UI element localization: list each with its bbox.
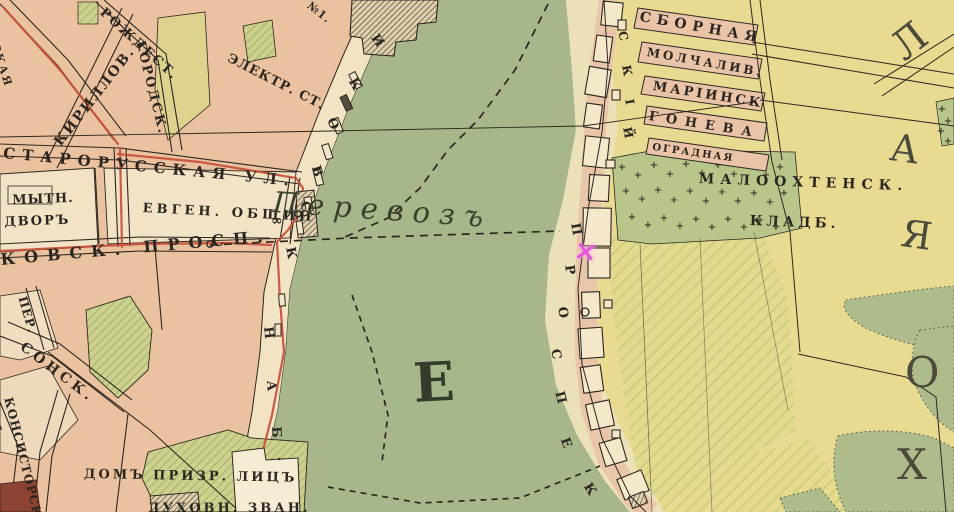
dom-prizreniya: ДОМЪ ПРИЗР. ЛИЦЪ (84, 468, 298, 485)
mytny-dvor-line1: МЫТН. (12, 192, 74, 207)
river-letter-e: Е (412, 354, 456, 410)
cemetery-name-line2: КЛАДБ. (750, 214, 840, 231)
map-labels: СТАРОРУССКАЯ УЛ.КИРИЛЛОВ.РОЖДЕСТ.ГОРОДСК… (0, 0, 954, 512)
district-letter-kh: Х (897, 444, 927, 486)
embankment-letter-v: В (309, 164, 325, 178)
prospekt-letter-e: Е (558, 436, 574, 450)
malookhtensky-letter-i: І (623, 98, 636, 106)
embankment-letter-i: И (368, 32, 386, 50)
cemetery-name-line1: МАЛООХТЕНСК. (699, 172, 909, 193)
prospekt-letter-p2: П (552, 390, 568, 405)
building-no1: №1. (305, 0, 333, 25)
district-letter-l: Л (884, 15, 935, 67)
street-sbornaya: СБОРНАЯ (639, 10, 764, 45)
street-starorusskaya: СТАРОРУССКАЯ УЛ. (3, 146, 297, 189)
street-per: ПЕР. (16, 295, 38, 335)
street-kirillovskaya: КИРИЛЛОВ. (52, 44, 138, 148)
street-konsistorsk: КОНСИСТОРСК. (2, 396, 45, 512)
malookhtensky-letter-k: К (620, 64, 634, 77)
malookhtensky-letter-s: С (616, 30, 630, 42)
prospekt-letter-s: С (548, 348, 563, 360)
embankment-letter-a: А (264, 380, 278, 391)
street-mariinsk: МАРІИНСК (652, 80, 764, 110)
embankment-letter-n: Н (261, 326, 275, 340)
prospekt-letter-k: К (581, 481, 598, 498)
embankment-letter-k2: К (283, 246, 298, 260)
map-canvas: ++++++++++++++++++++++++++++++++++++ (0, 0, 954, 512)
street-molchaliv: МОЛЧАЛИВ. (646, 46, 765, 78)
dukhovn-zvan: ДУХОВН. ЗВАН. (148, 502, 311, 512)
embankment-letter-o: О (324, 116, 340, 132)
malookhtensky-letter-y: Й (621, 126, 635, 139)
street-sonsk: СОНСК. (18, 340, 98, 405)
embankment-letter-dot: . (275, 456, 288, 461)
street-skaya: СКАЯ (0, 42, 14, 89)
district-letter-o: О (905, 352, 939, 394)
prospekt-letter-o: О (555, 306, 569, 319)
embankment-letter-b: Б (269, 426, 283, 438)
electric-station: ЭЛЕКТР. СТ. (225, 52, 327, 112)
mytny-dvor-line2: ДВОРЪ (4, 214, 71, 229)
street-goneva: ГОНЕВА (648, 110, 761, 140)
street-l: Л. (0, 420, 5, 438)
street-ogradnaya: ОГРАДНАЯ (652, 143, 735, 164)
district-letter-ya: Я (899, 214, 935, 256)
embankment-letter-k1: К (346, 76, 363, 93)
district-letter-a: А (888, 128, 922, 170)
church-marker: × (572, 236, 599, 267)
street-kovsk-prosp: КОВСК. ПРОСП. (0, 228, 272, 268)
